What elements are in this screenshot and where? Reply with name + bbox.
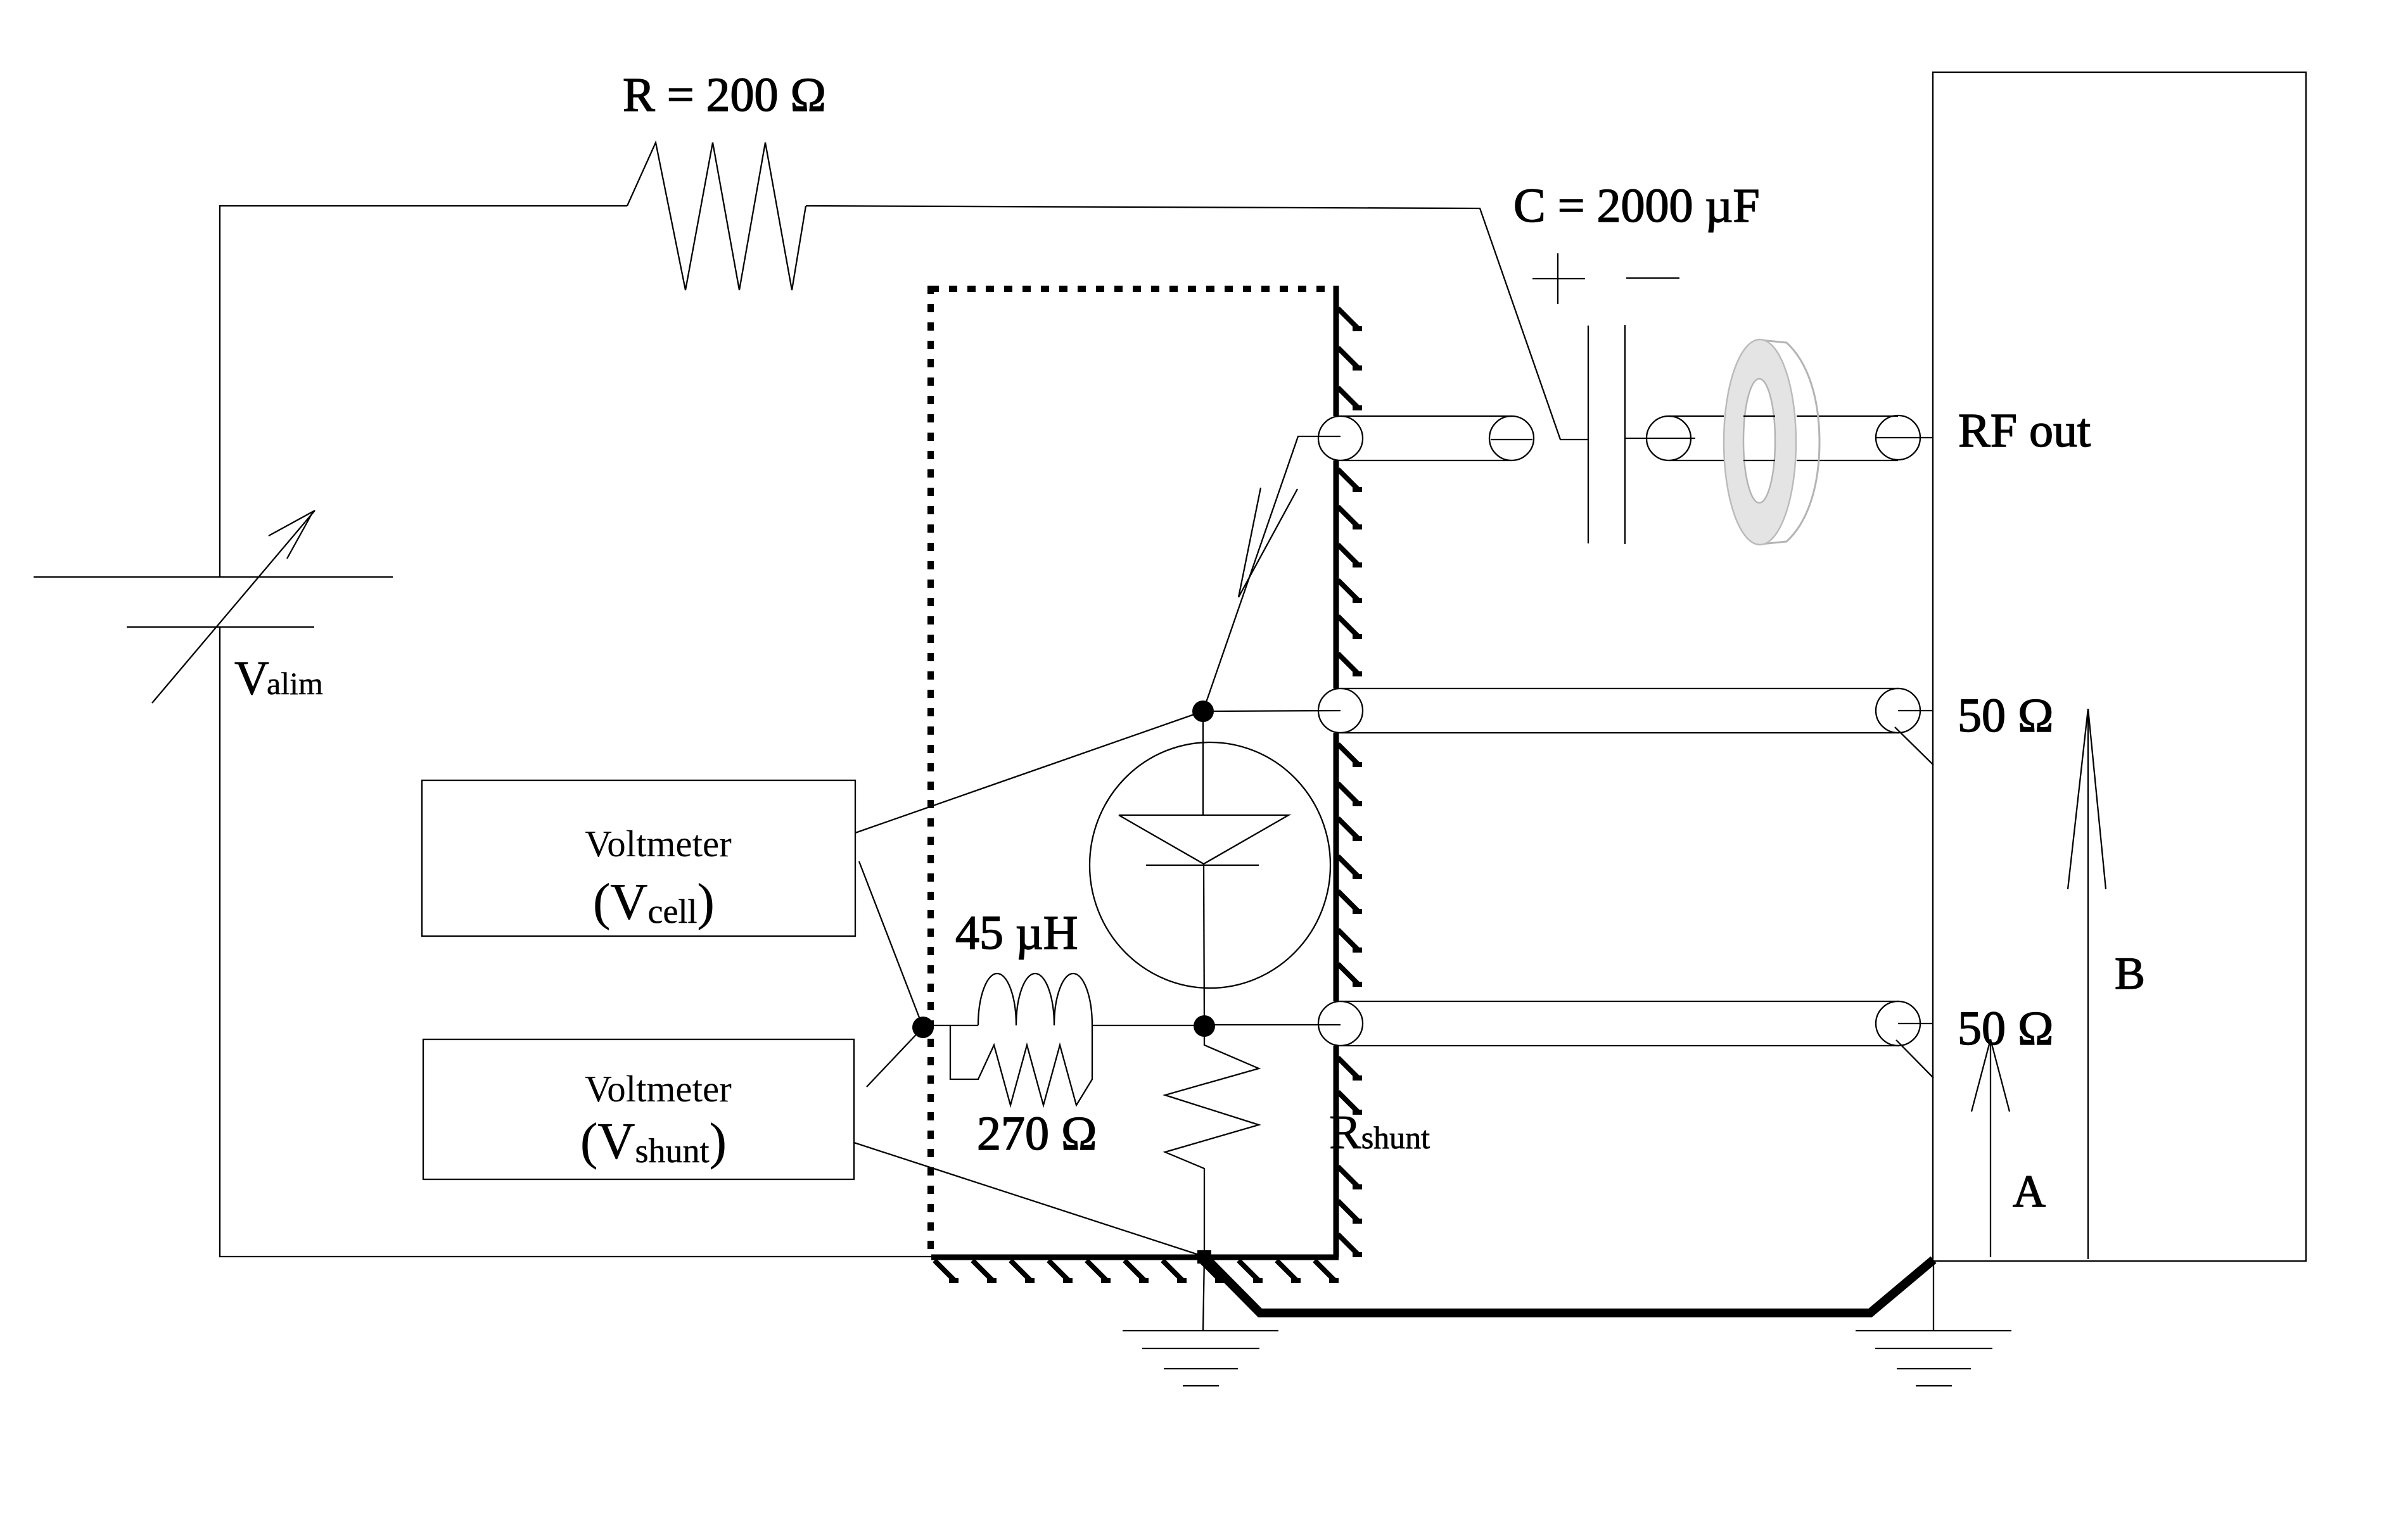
svg-text:50 Ω: 50 Ω	[1958, 689, 2053, 742]
svg-text:V: V	[234, 652, 269, 705]
svg-text:A: A	[2013, 1166, 2046, 1217]
svg-text:50 Ω: 50 Ω	[1958, 1002, 2053, 1055]
svg-text:R = 200 Ω: R = 200 Ω	[623, 68, 826, 122]
svg-text:alim: alim	[267, 666, 323, 701]
svg-text:B: B	[2115, 948, 2145, 999]
svg-text:RF out: RF out	[1958, 404, 2091, 457]
svg-text:Voltmeter: Voltmeter	[585, 823, 732, 865]
svg-text:C = 2000 µF: C = 2000 µF	[1513, 179, 1760, 232]
svg-text:45 µH: 45 µH	[955, 906, 1078, 960]
svg-text:Voltmeter: Voltmeter	[585, 1068, 732, 1110]
svg-text:270 Ω: 270 Ω	[977, 1107, 1097, 1160]
